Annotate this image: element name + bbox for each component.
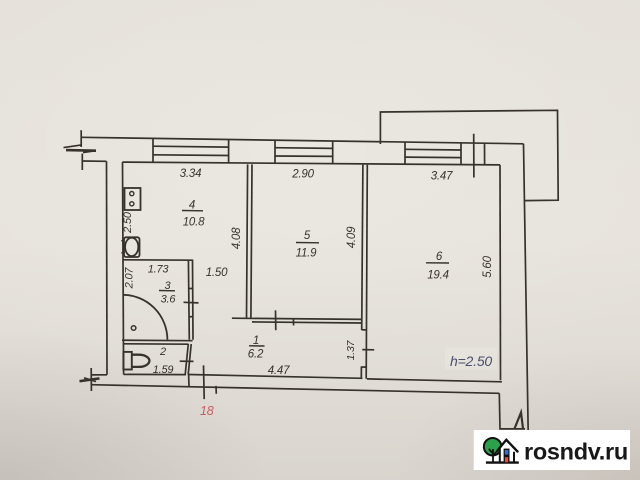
svg-text:4.09: 4.09 xyxy=(346,226,358,248)
svg-text:5: 5 xyxy=(304,230,311,242)
svg-text:2.50: 2.50 xyxy=(122,211,134,234)
svg-text:h=2.50: h=2.50 xyxy=(450,353,492,369)
svg-text:1.50: 1.50 xyxy=(206,267,228,279)
svg-text:3.6: 3.6 xyxy=(161,294,177,306)
svg-text:4.47: 4.47 xyxy=(268,365,290,377)
svg-text:19.4: 19.4 xyxy=(427,270,449,282)
svg-text:10.8: 10.8 xyxy=(183,217,205,229)
svg-text:4: 4 xyxy=(189,200,195,212)
svg-text:rosndv.ru: rosndv.ru xyxy=(524,439,628,465)
svg-text:11.9: 11.9 xyxy=(296,248,318,260)
svg-text:18: 18 xyxy=(200,404,214,418)
svg-text:2.07: 2.07 xyxy=(123,267,135,290)
svg-text:1.59: 1.59 xyxy=(153,364,174,376)
svg-text:2.90: 2.90 xyxy=(291,169,314,181)
svg-text:1.37: 1.37 xyxy=(345,339,357,360)
svg-text:4.08: 4.08 xyxy=(231,227,243,249)
svg-text:3.47: 3.47 xyxy=(431,171,453,183)
svg-text:5.60: 5.60 xyxy=(482,255,494,277)
svg-text:6: 6 xyxy=(436,251,443,263)
svg-text:6.2: 6.2 xyxy=(248,349,264,361)
svg-text:1.73: 1.73 xyxy=(148,264,170,276)
svg-text:3.34: 3.34 xyxy=(180,168,202,180)
svg-text:2: 2 xyxy=(159,346,166,358)
